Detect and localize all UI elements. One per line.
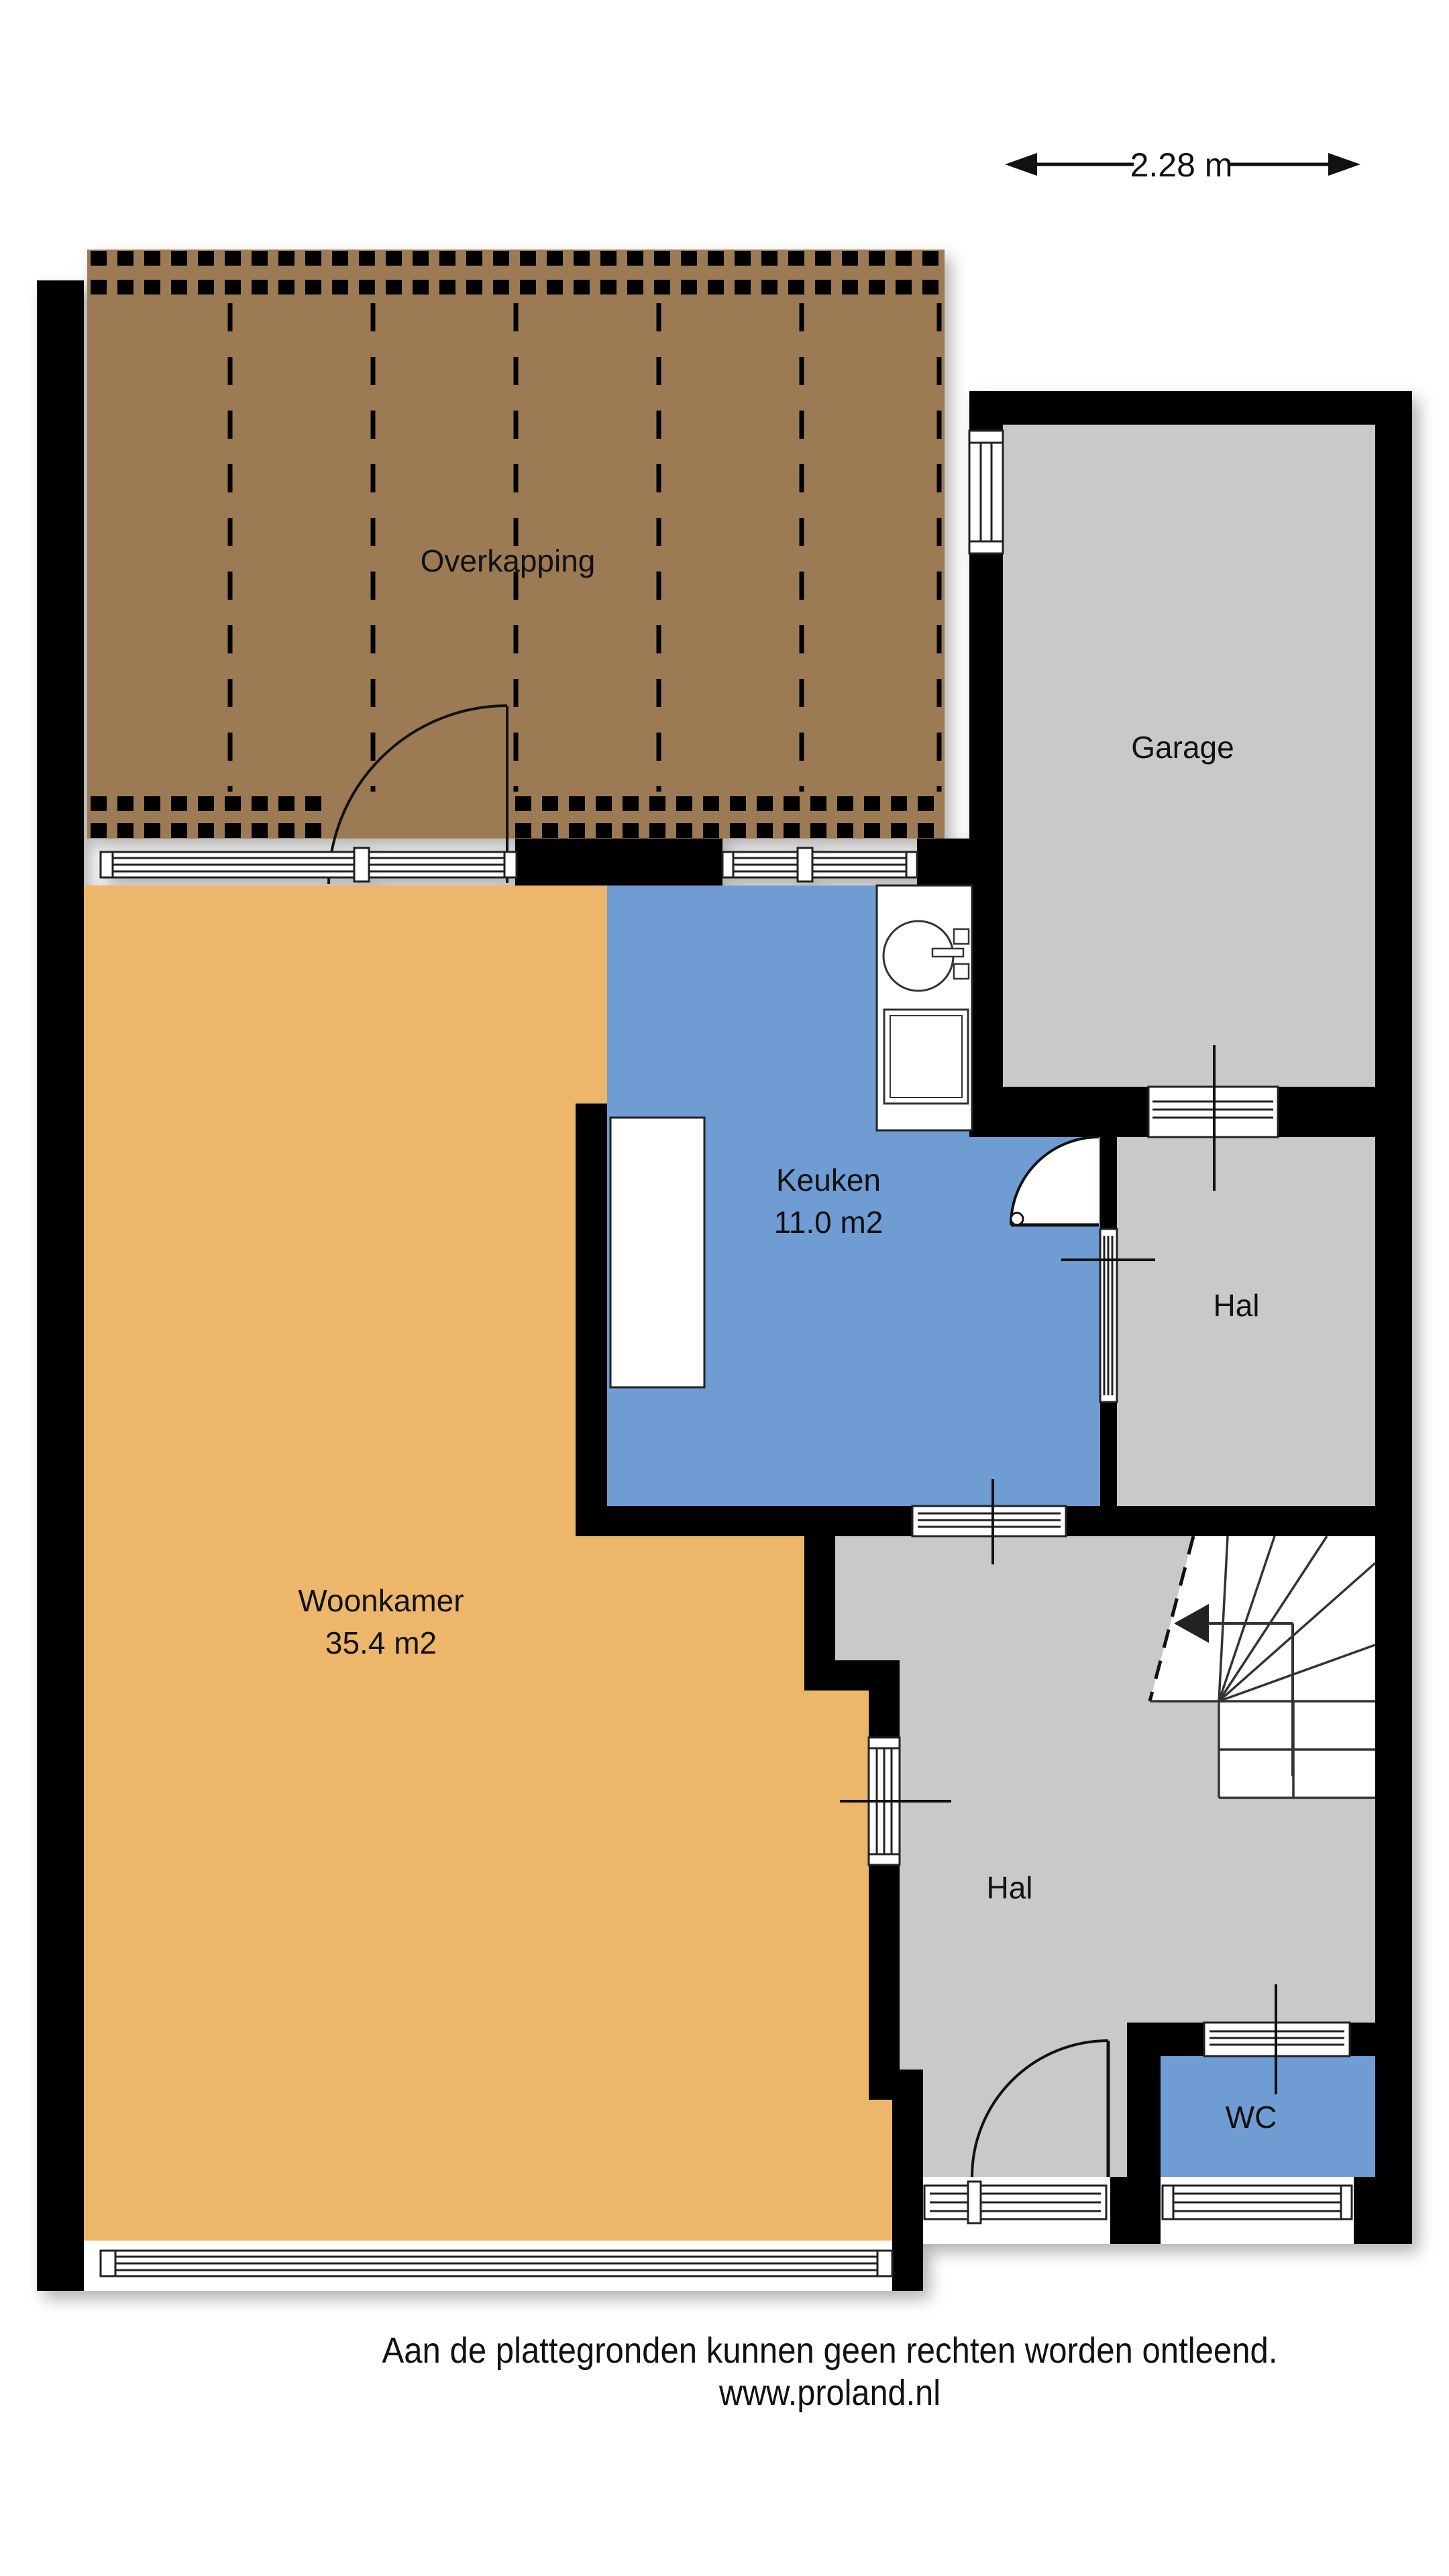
faucet-spout-icon [932,949,963,957]
wall-step-1 [835,1660,900,1690]
label-woonkamer-area: 35.4 m2 [325,1625,437,1660]
floorplan: Overkapping Garage Keuken 11.0 m2 Hal Wo… [37,250,1412,2291]
scale-arrow-right-icon [1328,153,1360,176]
wall-frontdoor-stub [1110,2177,1161,2244]
footer-line1: Aan de plattegronden kunnen geen rechten… [382,2330,1278,2371]
wall-north-mid [515,839,722,885]
label-keuken-area: 11.0 m2 [774,1205,883,1240]
wall-garage-top [969,391,1412,425]
window-mullion [798,848,812,881]
door-hinge-dot [1011,1213,1023,1225]
faucet-handle-icon [954,964,969,979]
window-woonkamer-bottom [84,2241,892,2291]
scale-bar: 2.28 m [1005,146,1360,184]
footer-disclaimer: Aan de plattegronden kunnen geen rechten… [382,2330,1278,2413]
window-north-woonkamer [101,848,517,881]
label-wc: WC [1226,2100,1277,2135]
wall-bottomright-corner [1354,2177,1412,2244]
hob-icon [884,1010,968,1104]
footer-line2: www.proland.nl [718,2373,941,2413]
kitchen-sink-counter [877,885,972,1130]
scale-arrow-left-icon [1005,153,1037,176]
kitchen-counter-left [610,1118,704,1387]
room-woonkamer-ext2 [804,1690,869,2241]
label-overkapping: Overkapping [421,543,596,578]
wall-woonkamer-right-a [804,1506,835,1690]
faucet-handle-icon [954,929,969,944]
wall-right-outer [1375,391,1412,2244]
window-north-keuken [722,848,917,881]
scale-label: 2.28 m [1130,146,1233,184]
floorplan-canvas: 2.28 m [0,0,1449,2576]
wall-woonkamer-right-c [892,2100,923,2291]
room-woonkamer-ext1 [607,1536,804,2241]
label-garage: Garage [1131,730,1234,765]
window-mullion [968,2182,981,2223]
window-wc-bottom [1161,2177,1354,2244]
wall-step-2 [869,2070,923,2100]
wall-keuken-woonkamer [576,1104,607,1506]
wall-halboven-bottom [1066,1506,1375,1536]
label-keuken: Keuken [776,1163,881,1197]
label-hal-boven: Hal [1213,1288,1259,1323]
room-woonkamer-ext3 [869,2100,892,2241]
wall-north-right [917,839,976,885]
wall-left-outer [37,280,84,2291]
window-garage-left [969,431,1003,553]
room-woonkamer [84,885,607,2241]
window-mullion [354,848,369,881]
wall-keuken-bottom [576,1506,912,1536]
label-hal: Hal [986,1870,1032,1905]
label-woonkamer: Woonkamer [298,1583,464,1618]
